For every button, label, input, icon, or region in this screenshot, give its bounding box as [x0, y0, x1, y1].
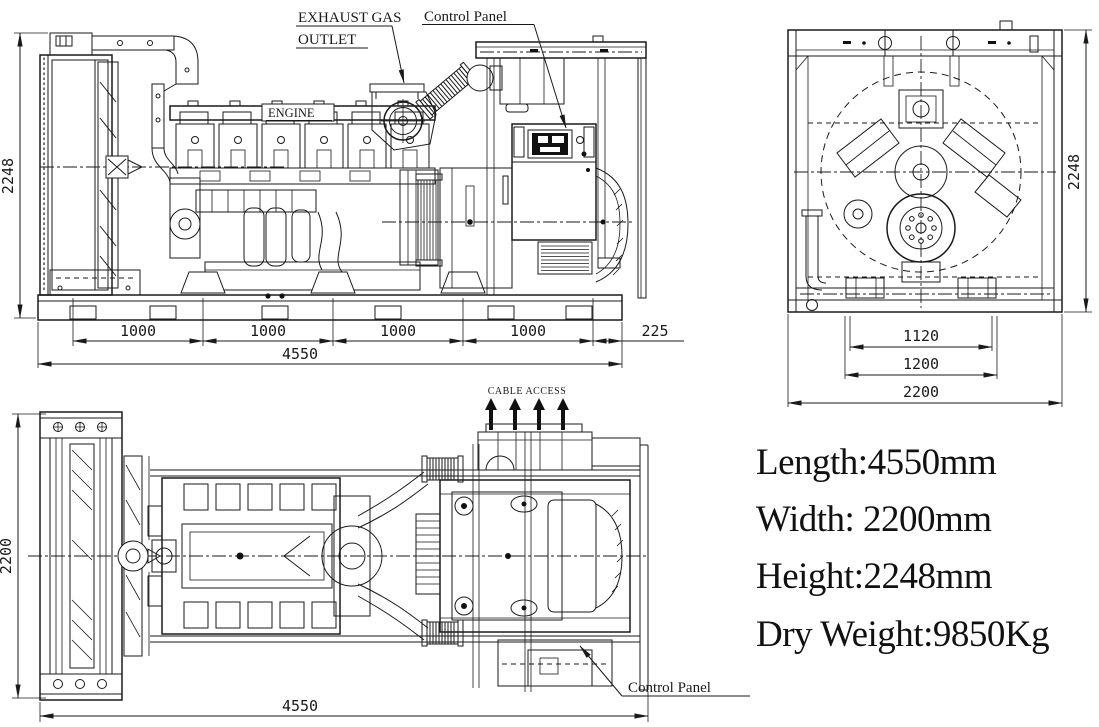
dim-side-total: 4550: [282, 345, 318, 363]
plan-view-labels: Control Panel: [580, 646, 750, 696]
louver-vent: [538, 242, 592, 274]
canopy-roof: [476, 42, 646, 58]
cable-access-box: [478, 432, 592, 470]
exhaust-bellows: [416, 62, 478, 119]
engine-front: [802, 56, 1021, 298]
dim-chain-2: 1000: [250, 322, 286, 340]
dim-plan-width: 2200: [0, 538, 15, 574]
duct-elbow: [166, 36, 198, 84]
mounting-foot: [441, 272, 485, 293]
base-skid: [38, 295, 622, 320]
dim-chain-3: 1000: [380, 322, 416, 340]
mounting-foot: [181, 272, 225, 293]
dim-front-overall: 2200: [903, 383, 939, 401]
cooling-fan-side: [98, 62, 142, 288]
side-view: ENGINE: [0, 9, 684, 368]
dim-front-inner: 1120: [903, 327, 939, 345]
turbo-plate: [370, 84, 424, 92]
control-panel-leader: [534, 25, 566, 129]
accessory-right: [975, 175, 1021, 217]
exhaust-gas-label-line1: EXHAUST GAS: [298, 10, 401, 26]
cable-access-label: CABLE ACCESS: [488, 386, 567, 397]
exhaust-leader: [392, 26, 404, 83]
exhaust-elbow: [467, 65, 493, 91]
drawing-canvas: ENGINE: [0, 0, 1099, 727]
front-view: 2248 1120 1200 2200: [788, 21, 1092, 407]
injection-pump-row: [196, 190, 316, 212]
dim-plan-length: 4550: [282, 697, 318, 715]
dim-front-height: 2248: [1065, 154, 1083, 190]
control-panel-leader-bottom: [580, 646, 622, 696]
control-panel-label-bottom: Control Panel: [628, 680, 711, 696]
oil-filter: [266, 208, 286, 266]
control-panel-label-top: Control Panel: [424, 9, 507, 25]
plan-view: CABLE ACCESS Control Panel: [0, 386, 750, 722]
panel-button: [582, 152, 587, 157]
canopy-post: [487, 58, 494, 295]
mounting-foot: [311, 272, 355, 293]
cable-arrow-icon: [533, 398, 545, 430]
fan-hub-plan: [118, 541, 148, 571]
roof-stub: [1000, 21, 1012, 30]
dim-chain-1: 1000: [120, 322, 156, 340]
oil-pan: [205, 262, 420, 290]
spec-length: Length:4550mm: [756, 441, 996, 484]
dim-side-height: 2248: [0, 158, 17, 194]
cable-access-assembly: CABLE ACCESS: [478, 386, 640, 470]
canopy-right-wall: [638, 58, 646, 298]
spec-height: Height:2248mm: [756, 555, 992, 598]
cable-arrow-icon: [557, 398, 569, 430]
front-enclosure: [788, 21, 1062, 312]
spec-weight: Dry Weight:9850Kg: [756, 613, 1049, 656]
engine-label: ENGINE: [268, 106, 315, 120]
radiator-top-duct: [92, 36, 174, 50]
fuel-filter: [244, 208, 264, 266]
control-panel-box: [512, 124, 596, 274]
exhaust-gas-label-line2: OUTLET: [298, 32, 356, 48]
generator-body: [440, 168, 512, 288]
charge-cooler-plan: [416, 514, 440, 594]
dim-chain-4: 1000: [510, 322, 546, 340]
cable-arrow-icon: [509, 398, 521, 430]
air-box: [500, 58, 564, 104]
engine-side: ENGINE: [170, 101, 485, 299]
cable-arrow-icon: [485, 398, 497, 430]
dim-front-base: 1200: [903, 355, 939, 373]
canopy-post: [598, 58, 605, 258]
generator-bell: [596, 168, 628, 282]
accessory-pulley: [844, 200, 872, 228]
spec-width: Width: 2200mm: [756, 498, 992, 541]
panel-button: [577, 137, 584, 144]
side-view-labels: EXHAUST GAS OUTLET Control Panel: [296, 9, 566, 128]
dim-offset-225: 225: [641, 322, 668, 340]
front-pulley: [170, 209, 200, 239]
frame-rails-plan: [150, 432, 648, 692]
